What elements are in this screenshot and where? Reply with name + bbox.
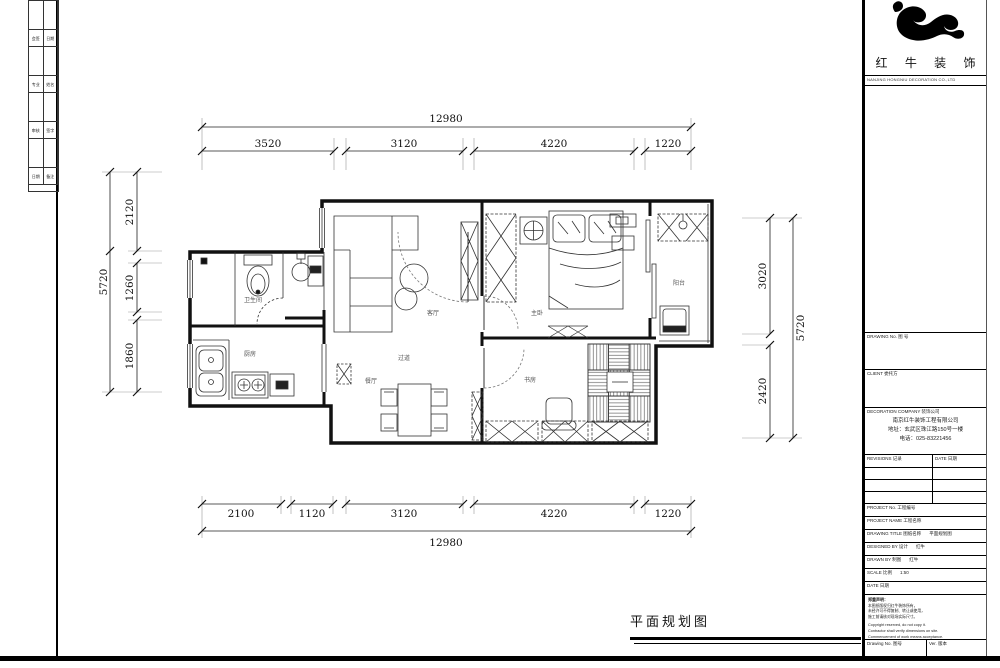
signature-strip-table: 会签日期 专业姓名 审核签字 日期备注 — [28, 0, 59, 192]
row-label: DATE 日期 — [865, 582, 889, 594]
row-label: SCALE 比例 — [865, 569, 892, 581]
designed-by-row: DESIGNED BY 设计 红牛 — [865, 543, 986, 556]
corner-cell — [44, 1, 59, 30]
corner-cell — [29, 1, 44, 30]
corner-cell — [29, 47, 44, 76]
dim-left-3: 1860 — [124, 343, 136, 370]
corner-cell — [44, 139, 59, 168]
dim-top-2: 3120 — [391, 138, 418, 150]
dim-right-1: 3020 — [757, 263, 769, 290]
row-label: DRAWN BY 制图 — [865, 556, 901, 568]
dim-left-overall: 5720 — [98, 269, 110, 296]
row-label: PROJECT No. 工程编号 — [865, 504, 915, 516]
corner-cell: 日期 — [44, 30, 59, 47]
dimension-text: 12980 3520 3120 4220 1220 2100 1120 3120… — [98, 113, 807, 549]
title-underline-thin — [634, 643, 861, 644]
balcony-fixtures — [658, 214, 708, 335]
dim-left-1: 2120 — [124, 199, 136, 226]
company-line: 电话：025-83221456 — [865, 435, 986, 444]
revisions-label: REVISIONS 记录 — [865, 455, 933, 467]
room-label-hallway: 过道 — [398, 354, 410, 362]
drawing-title-row: DRAWING TITLE 图纸名称 平面规划图 — [865, 530, 986, 543]
row-label: DESIGNED BY 设计 — [865, 543, 908, 555]
corner-cell: 备注 — [44, 168, 59, 185]
drawing-sheet: 12980 3520 3120 4220 1220 2100 1120 3120… — [0, 0, 1000, 668]
room-label-living: 客厅 — [427, 309, 439, 317]
footer-drawing-no: Drawing No. 图号 — [865, 640, 927, 656]
company-logo: 红 牛 装 饰 — [865, 0, 986, 76]
room-label-study: 书房 — [524, 376, 536, 384]
revisions-header-row: REVISIONS 记录 DATE 日期 — [865, 455, 986, 468]
kitchen-fixtures — [193, 340, 294, 400]
project-name-row: PROJECT NAME 工程名称 — [865, 517, 986, 530]
corner-cell: 日期 — [29, 168, 44, 185]
room-label-dining: 餐厅 — [365, 377, 377, 385]
revisions-empty-row — [865, 468, 986, 480]
corner-cell: 会签 — [29, 30, 44, 47]
room-label-kitchen: 厨房 — [244, 350, 256, 358]
dimension-extension-lines — [102, 118, 802, 538]
title-block-footer: Drawing No. 图号 Ver. 版本 — [865, 640, 986, 656]
title-block-blank-panel — [865, 86, 986, 333]
dim-right-overall: 5720 — [795, 315, 807, 342]
corner-cell: 姓名 — [44, 76, 59, 93]
date-row: DATE 日期 — [865, 582, 986, 595]
row-value: 1:50 — [900, 569, 909, 581]
scale-row: SCALE 比例 1:50 — [865, 569, 986, 582]
dim-top-3: 4220 — [541, 138, 568, 150]
dim-right-2: 2420 — [757, 378, 769, 405]
corner-cell: 审核 — [29, 122, 44, 139]
room-label-bathroom: 卫生间 — [244, 296, 262, 304]
company-name: 红 牛 装 饰 — [865, 54, 986, 71]
dim-top-overall: 12980 — [429, 113, 462, 125]
study-furniture — [472, 344, 650, 442]
company-line: 地址：玄武区珠江路150号一楼 — [865, 426, 986, 435]
dimension-lines — [110, 127, 793, 531]
corner-cell: 签字 — [44, 122, 59, 139]
corner-cell — [29, 93, 44, 122]
revisions-empty-row — [865, 492, 986, 504]
row-label: DRAWING TITLE 图纸名称 — [865, 530, 921, 542]
drawn-by-row: DRAWN BY 制图 红牛 — [865, 556, 986, 569]
dim-bottom-5: 1220 — [655, 508, 682, 520]
dim-bottom-2: 1120 — [299, 508, 326, 520]
dining-furniture — [337, 364, 447, 436]
bull-logo-icon — [865, 0, 986, 52]
corner-cell — [44, 47, 59, 76]
room-label-master-bedroom: 主卧 — [531, 309, 543, 317]
company-info-label: DECORATION COMPANY 装饰公司 — [865, 408, 986, 415]
dimension-ticks — [106, 123, 797, 535]
dim-left-2: 1260 — [124, 275, 136, 302]
row-value: 平面规划图 — [929, 530, 952, 542]
living-room-furniture — [334, 216, 478, 332]
revisions-date-label: DATE 日期 — [933, 455, 986, 467]
title-underline-thick — [630, 637, 861, 640]
dim-top-1: 3520 — [255, 138, 282, 150]
corner-cell — [29, 139, 44, 168]
drawing-no-field: DRAWING No. 图 号 — [865, 333, 986, 370]
row-value: 红牛 — [909, 556, 918, 568]
company-info-field: DECORATION COMPANY 装饰公司 南京红牛装饰工程有限公司 地址：… — [865, 408, 986, 455]
row-label: PROJECT NAME 工程名称 — [865, 517, 921, 529]
room-label-balcony: 阳台 — [673, 279, 685, 287]
title-block: 红 牛 装 饰 NANJING HONGNIU DECORATION CO.,L… — [862, 0, 987, 656]
floor-plan-canvas: 12980 3520 3120 4220 1220 2100 1120 3120… — [0, 0, 1000, 668]
notes-field: 郑重声明： 本图纸版权归红牛装饰所有， 未经许可不得复制、转让或使用， 施工前请… — [865, 595, 986, 640]
notes-title: 郑重声明： — [868, 597, 888, 602]
row-value: 红牛 — [916, 543, 925, 555]
sheet-bottom-border — [0, 656, 1000, 661]
company-line: 南京红牛装饰工程有限公司 — [865, 417, 986, 426]
footer-version: Ver. 版本 — [927, 640, 986, 656]
dim-bottom-4: 4220 — [541, 508, 568, 520]
client-field: CLIENT 委托方 — [865, 370, 986, 408]
project-no-row: PROJECT No. 工程编号 — [865, 504, 986, 517]
company-subtitle: NANJING HONGNIU DECORATION CO.,LTD — [865, 76, 986, 86]
corner-cell: 专业 — [29, 76, 44, 93]
dim-bottom-overall: 12980 — [429, 537, 462, 549]
bathroom-fixtures — [201, 252, 323, 326]
bedroom-furniture — [484, 211, 636, 338]
corner-cell — [44, 93, 59, 122]
dim-bottom-1: 2100 — [228, 508, 255, 520]
dim-top-4: 1220 — [655, 138, 682, 150]
drawing-title: 平面规划图 — [600, 611, 740, 630]
dim-bottom-3: 3120 — [391, 508, 418, 520]
revisions-empty-row — [865, 480, 986, 492]
